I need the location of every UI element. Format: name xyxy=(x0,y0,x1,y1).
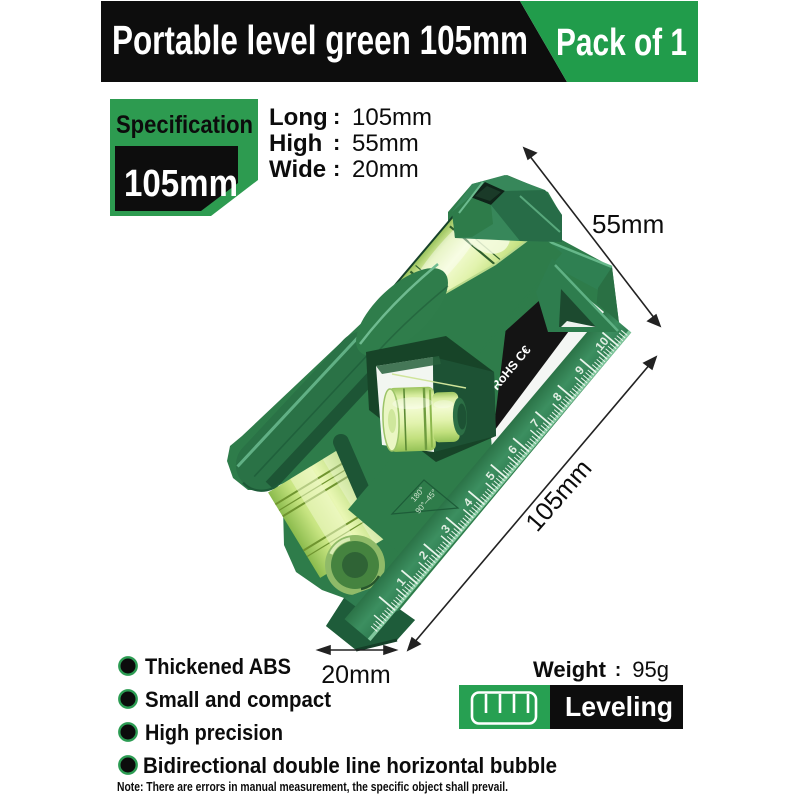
svg-text::: : xyxy=(333,156,340,181)
svg-text::: : xyxy=(333,104,340,129)
svg-text:20mm: 20mm xyxy=(352,156,419,183)
svg-text:105mm: 105mm xyxy=(352,104,432,131)
svg-text:Bidirectional double line hori: Bidirectional double line horizontal bub… xyxy=(143,753,557,778)
svg-text:Thickened ABS: Thickened ABS xyxy=(145,654,291,679)
svg-text:Pack of 1: Pack of 1 xyxy=(556,22,687,64)
svg-text:Note: There are errors in manu: Note: There are errors in manual measure… xyxy=(117,779,508,794)
svg-text:Leveling: Leveling xyxy=(565,691,673,722)
svg-text:20mm: 20mm xyxy=(321,661,390,689)
svg-text:55mm: 55mm xyxy=(592,209,664,239)
svg-text:Small and compact: Small and compact xyxy=(145,687,332,712)
svg-text:Long: Long xyxy=(269,104,328,131)
svg-text:High precision: High precision xyxy=(145,720,283,745)
svg-text:Weight:95g: Weight:95g xyxy=(533,657,669,682)
svg-text:55mm: 55mm xyxy=(352,130,419,157)
svg-text:Wide: Wide xyxy=(269,156,326,183)
svg-text:High: High xyxy=(269,130,322,157)
svg-text:Portable level green 105mm: Portable level green 105mm xyxy=(112,17,528,63)
svg-text:Specification: Specification xyxy=(116,111,253,139)
svg-text:105mm: 105mm xyxy=(124,163,238,205)
svg-text::: : xyxy=(333,130,340,155)
